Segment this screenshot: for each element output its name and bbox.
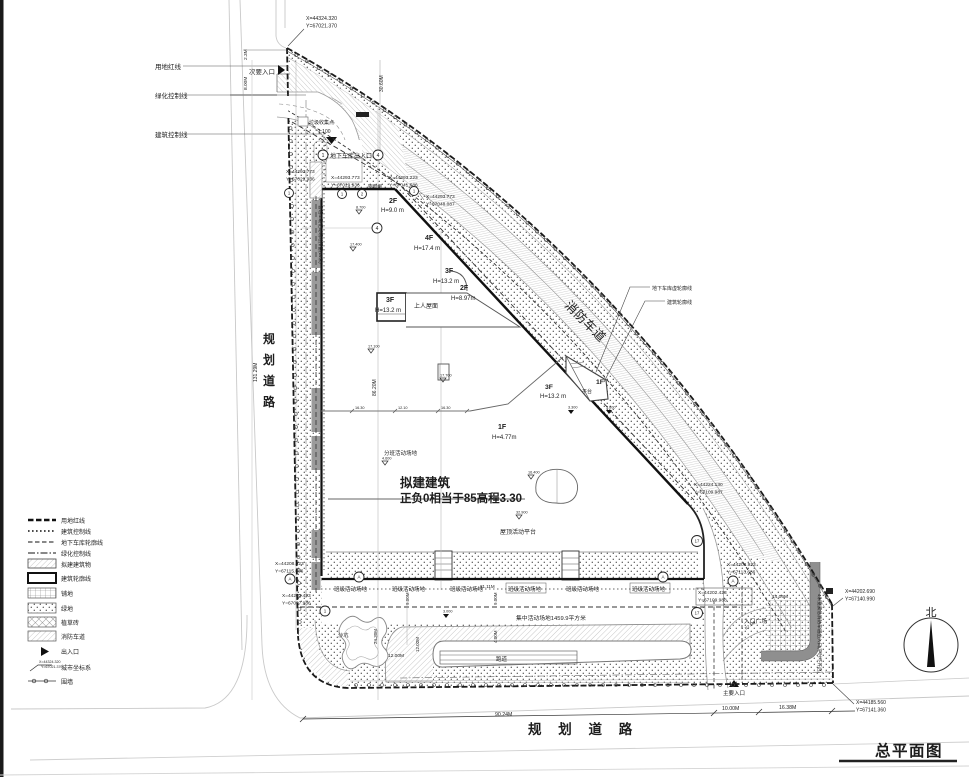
- svg-text:班级活动场地: 班级活动场地: [392, 585, 426, 593]
- svg-text:8.00M: 8.00M: [243, 77, 249, 90]
- svg-text:A: A: [731, 579, 734, 584]
- svg-text:X=44293.773: X=44293.773: [286, 169, 315, 175]
- svg-text:3F: 3F: [386, 297, 395, 304]
- svg-text:规 划 道 路: 规 划 道 路: [528, 721, 639, 737]
- svg-text:X=44324.320: X=44324.320: [39, 660, 60, 664]
- svg-text:建筑控制线: 建筑控制线: [61, 528, 91, 536]
- svg-text:4F: 4F: [425, 235, 434, 242]
- svg-text:A: A: [288, 577, 291, 582]
- svg-text:17.100: 17.100: [368, 345, 380, 349]
- svg-text:绿化控制线: 绿化控制线: [155, 91, 188, 100]
- svg-text:用地红线: 用地红线: [155, 62, 182, 71]
- svg-text:2F: 2F: [460, 285, 469, 292]
- svg-text:H=17.4 m: H=17.4 m: [414, 246, 440, 252]
- svg-text:屋顶活动平台: 屋顶活动平台: [500, 528, 536, 536]
- svg-text:A: A: [661, 575, 664, 580]
- svg-text:Y=67021.370: Y=67021.370: [41, 665, 62, 669]
- svg-text:路: 路: [263, 394, 276, 409]
- svg-text:1: 1: [322, 153, 325, 159]
- svg-text:X=44202.690: X=44202.690: [845, 589, 875, 595]
- svg-text:H=4.77m: H=4.77m: [492, 435, 517, 441]
- svg-text:地下车库虚轮廓线: 地下车库虚轮廓线: [652, 285, 692, 292]
- svg-text:集中活动场地1459.9平方米: 集中活动场地1459.9平方米: [516, 614, 586, 622]
- svg-text:17.400: 17.400: [350, 243, 362, 247]
- svg-text:1F: 1F: [596, 379, 604, 386]
- svg-text:拟建建筑: 拟建建筑: [400, 475, 451, 490]
- svg-text:3.800: 3.800: [606, 406, 616, 410]
- svg-text:次要入口: 次要入口: [249, 67, 275, 76]
- svg-text:9.00M: 9.00M: [405, 592, 410, 605]
- svg-text:班级活动场地: 班级活动场地: [632, 585, 666, 593]
- svg-text:鲁班工助记动场地预留(14米): 鲁班工助记动场地预留(14米): [317, 205, 324, 264]
- svg-text:17: 17: [695, 611, 700, 616]
- svg-text:平台: 平台: [582, 388, 592, 395]
- svg-text:消防车道: 消防车道: [61, 633, 85, 641]
- svg-text:Y=67109.987: Y=67109.987: [694, 490, 723, 496]
- svg-text:Y=67029.936: Y=67029.936: [331, 183, 360, 189]
- svg-text:4: 4: [376, 226, 379, 232]
- svg-text:Y=67021.370: Y=67021.370: [306, 24, 337, 30]
- svg-text:铺地: 铺地: [61, 590, 73, 598]
- svg-text:北: 北: [926, 606, 937, 619]
- svg-text:Y=67048.087: Y=67048.087: [426, 202, 455, 208]
- svg-text:规: 规: [263, 331, 275, 346]
- svg-text:#1.11M: #1.11M: [480, 584, 495, 589]
- svg-text:3.000: 3.000: [443, 610, 453, 614]
- svg-text:17.700: 17.700: [440, 374, 452, 378]
- svg-text:3F: 3F: [445, 268, 454, 275]
- svg-text:X=44293.773: X=44293.773: [331, 175, 360, 181]
- svg-text:H=13.2 m: H=13.2 m: [540, 394, 566, 400]
- svg-text:沙坑: 沙坑: [338, 631, 348, 639]
- svg-text:城市坐标系: 城市坐标系: [61, 664, 91, 672]
- svg-text:正负0相当于85高程3.30: 正负0相当于85高程3.30: [400, 491, 522, 505]
- svg-text:17: 17: [695, 539, 700, 544]
- svg-text:划: 划: [263, 352, 275, 367]
- svg-text:钢雨棚: 钢雨棚: [368, 183, 382, 190]
- svg-text:1:100: 1:100: [318, 129, 331, 135]
- svg-text:24.30M: 24.30M: [373, 629, 378, 644]
- svg-text:班级活动场地: 班级活动场地: [566, 585, 600, 593]
- svg-text:86.20M: 86.20M: [372, 379, 378, 396]
- svg-text:32.900: 32.900: [516, 511, 528, 515]
- svg-text:14.06M: 14.06M: [772, 594, 788, 600]
- svg-text:总平面图: 总平面图: [875, 741, 943, 760]
- svg-text:4.600: 4.600: [382, 457, 392, 461]
- svg-text:出入口: 出入口: [61, 648, 79, 656]
- svg-text:绿化控制线: 绿化控制线: [61, 550, 91, 558]
- svg-text:12.10: 12.10: [398, 406, 408, 410]
- svg-text:垃圾收集点: 垃圾收集点: [309, 119, 334, 126]
- svg-text:2F: 2F: [389, 198, 398, 205]
- svg-text:X=44293.223: X=44293.223: [389, 175, 418, 181]
- svg-text:1F: 1F: [498, 424, 507, 431]
- svg-text:建筑控制线: 建筑控制线: [155, 130, 188, 139]
- svg-text:Y=67109.988: Y=67109.988: [698, 598, 727, 604]
- svg-text:班级活动场地: 班级活动场地: [450, 585, 484, 593]
- svg-text:2.3M: 2.3M: [243, 49, 249, 60]
- svg-text:建筑轮廓线: 建筑轮廓线: [667, 299, 692, 306]
- svg-text:地下车库轮廓线: 地下车库轮廓线: [61, 539, 103, 547]
- svg-text:植草砖: 植草砖: [61, 619, 79, 627]
- svg-text:入口广场: 入口广场: [744, 617, 767, 625]
- svg-text:16.400: 16.400: [528, 471, 540, 475]
- svg-text:H=13.2 m: H=13.2 m: [433, 279, 459, 285]
- svg-text:12.02M: 12.02M: [415, 637, 420, 652]
- svg-text:16.30: 16.30: [441, 406, 451, 410]
- svg-text:4: 4: [377, 153, 380, 159]
- svg-text:131.29M: 131.29M: [253, 363, 259, 382]
- svg-text:X=44208.923: X=44208.923: [727, 562, 756, 568]
- svg-text:X=44185.560: X=44185.560: [856, 700, 886, 706]
- svg-text:4.00M: 4.00M: [493, 630, 498, 643]
- svg-text:X=44293.773: X=44293.773: [426, 194, 455, 200]
- svg-text:Y=67097.986: Y=67097.986: [282, 601, 311, 607]
- svg-text:4米宽紧急消防车道出入口(平时不开启): 4米宽紧急消防车道出入口(平时不开启): [816, 594, 823, 674]
- svg-text:班级活动场地: 班级活动场地: [334, 585, 368, 593]
- svg-text:90.24M: 90.24M: [495, 712, 512, 718]
- svg-text:H=8.97m: H=8.97m: [451, 296, 476, 302]
- svg-text:10.00M: 10.00M: [722, 706, 739, 712]
- svg-text:3F: 3F: [545, 384, 553, 391]
- svg-text:用地红线: 用地红线: [61, 517, 85, 525]
- svg-text:12.00M: 12.00M: [388, 653, 404, 659]
- svg-text:Y=67029.936: Y=67029.936: [286, 177, 315, 183]
- svg-text:Y=67141.360: Y=67141.360: [856, 708, 886, 714]
- svg-text:9.00M: 9.00M: [493, 592, 498, 605]
- svg-text:X=44324.320: X=44324.320: [306, 16, 337, 22]
- svg-text:班级活动场地: 班级活动场地: [508, 585, 542, 593]
- svg-text:围墙: 围墙: [61, 678, 73, 686]
- svg-text:H=13.2 m: H=13.2 m: [375, 308, 401, 314]
- svg-text:Y=67140.990: Y=67140.990: [845, 597, 875, 603]
- svg-text:Y=67113.686: Y=67113.686: [727, 570, 756, 576]
- svg-text:3.300: 3.300: [568, 406, 578, 410]
- svg-text:H=9.0 m: H=9.0 m: [381, 208, 404, 214]
- svg-text:X=44202.423: X=44202.423: [282, 593, 311, 599]
- svg-text:绿地: 绿地: [61, 605, 73, 613]
- svg-text:拟建建筑物: 拟建建筑物: [61, 561, 91, 569]
- svg-text:上人屋面: 上人屋面: [414, 302, 438, 310]
- svg-text:X=44224.130: X=44224.130: [694, 482, 723, 488]
- svg-text:8.700: 8.700: [356, 206, 366, 210]
- svg-text:30.60M: 30.60M: [379, 75, 385, 92]
- svg-text:道: 道: [263, 373, 275, 388]
- svg-text:16.30: 16.30: [355, 406, 365, 410]
- svg-text:地下车库出入口: 地下车库出入口: [330, 152, 372, 160]
- svg-text:16.38M: 16.38M: [779, 705, 796, 711]
- svg-text:A: A: [357, 575, 360, 580]
- svg-text:X=44208.923: X=44208.923: [275, 561, 304, 567]
- svg-text:建筑轮廓线: 建筑轮廓线: [61, 575, 91, 583]
- svg-text:X=44202.423: X=44202.423: [698, 590, 727, 596]
- svg-text:主要入口: 主要入口: [723, 689, 745, 697]
- svg-text:跑道: 跑道: [496, 655, 508, 663]
